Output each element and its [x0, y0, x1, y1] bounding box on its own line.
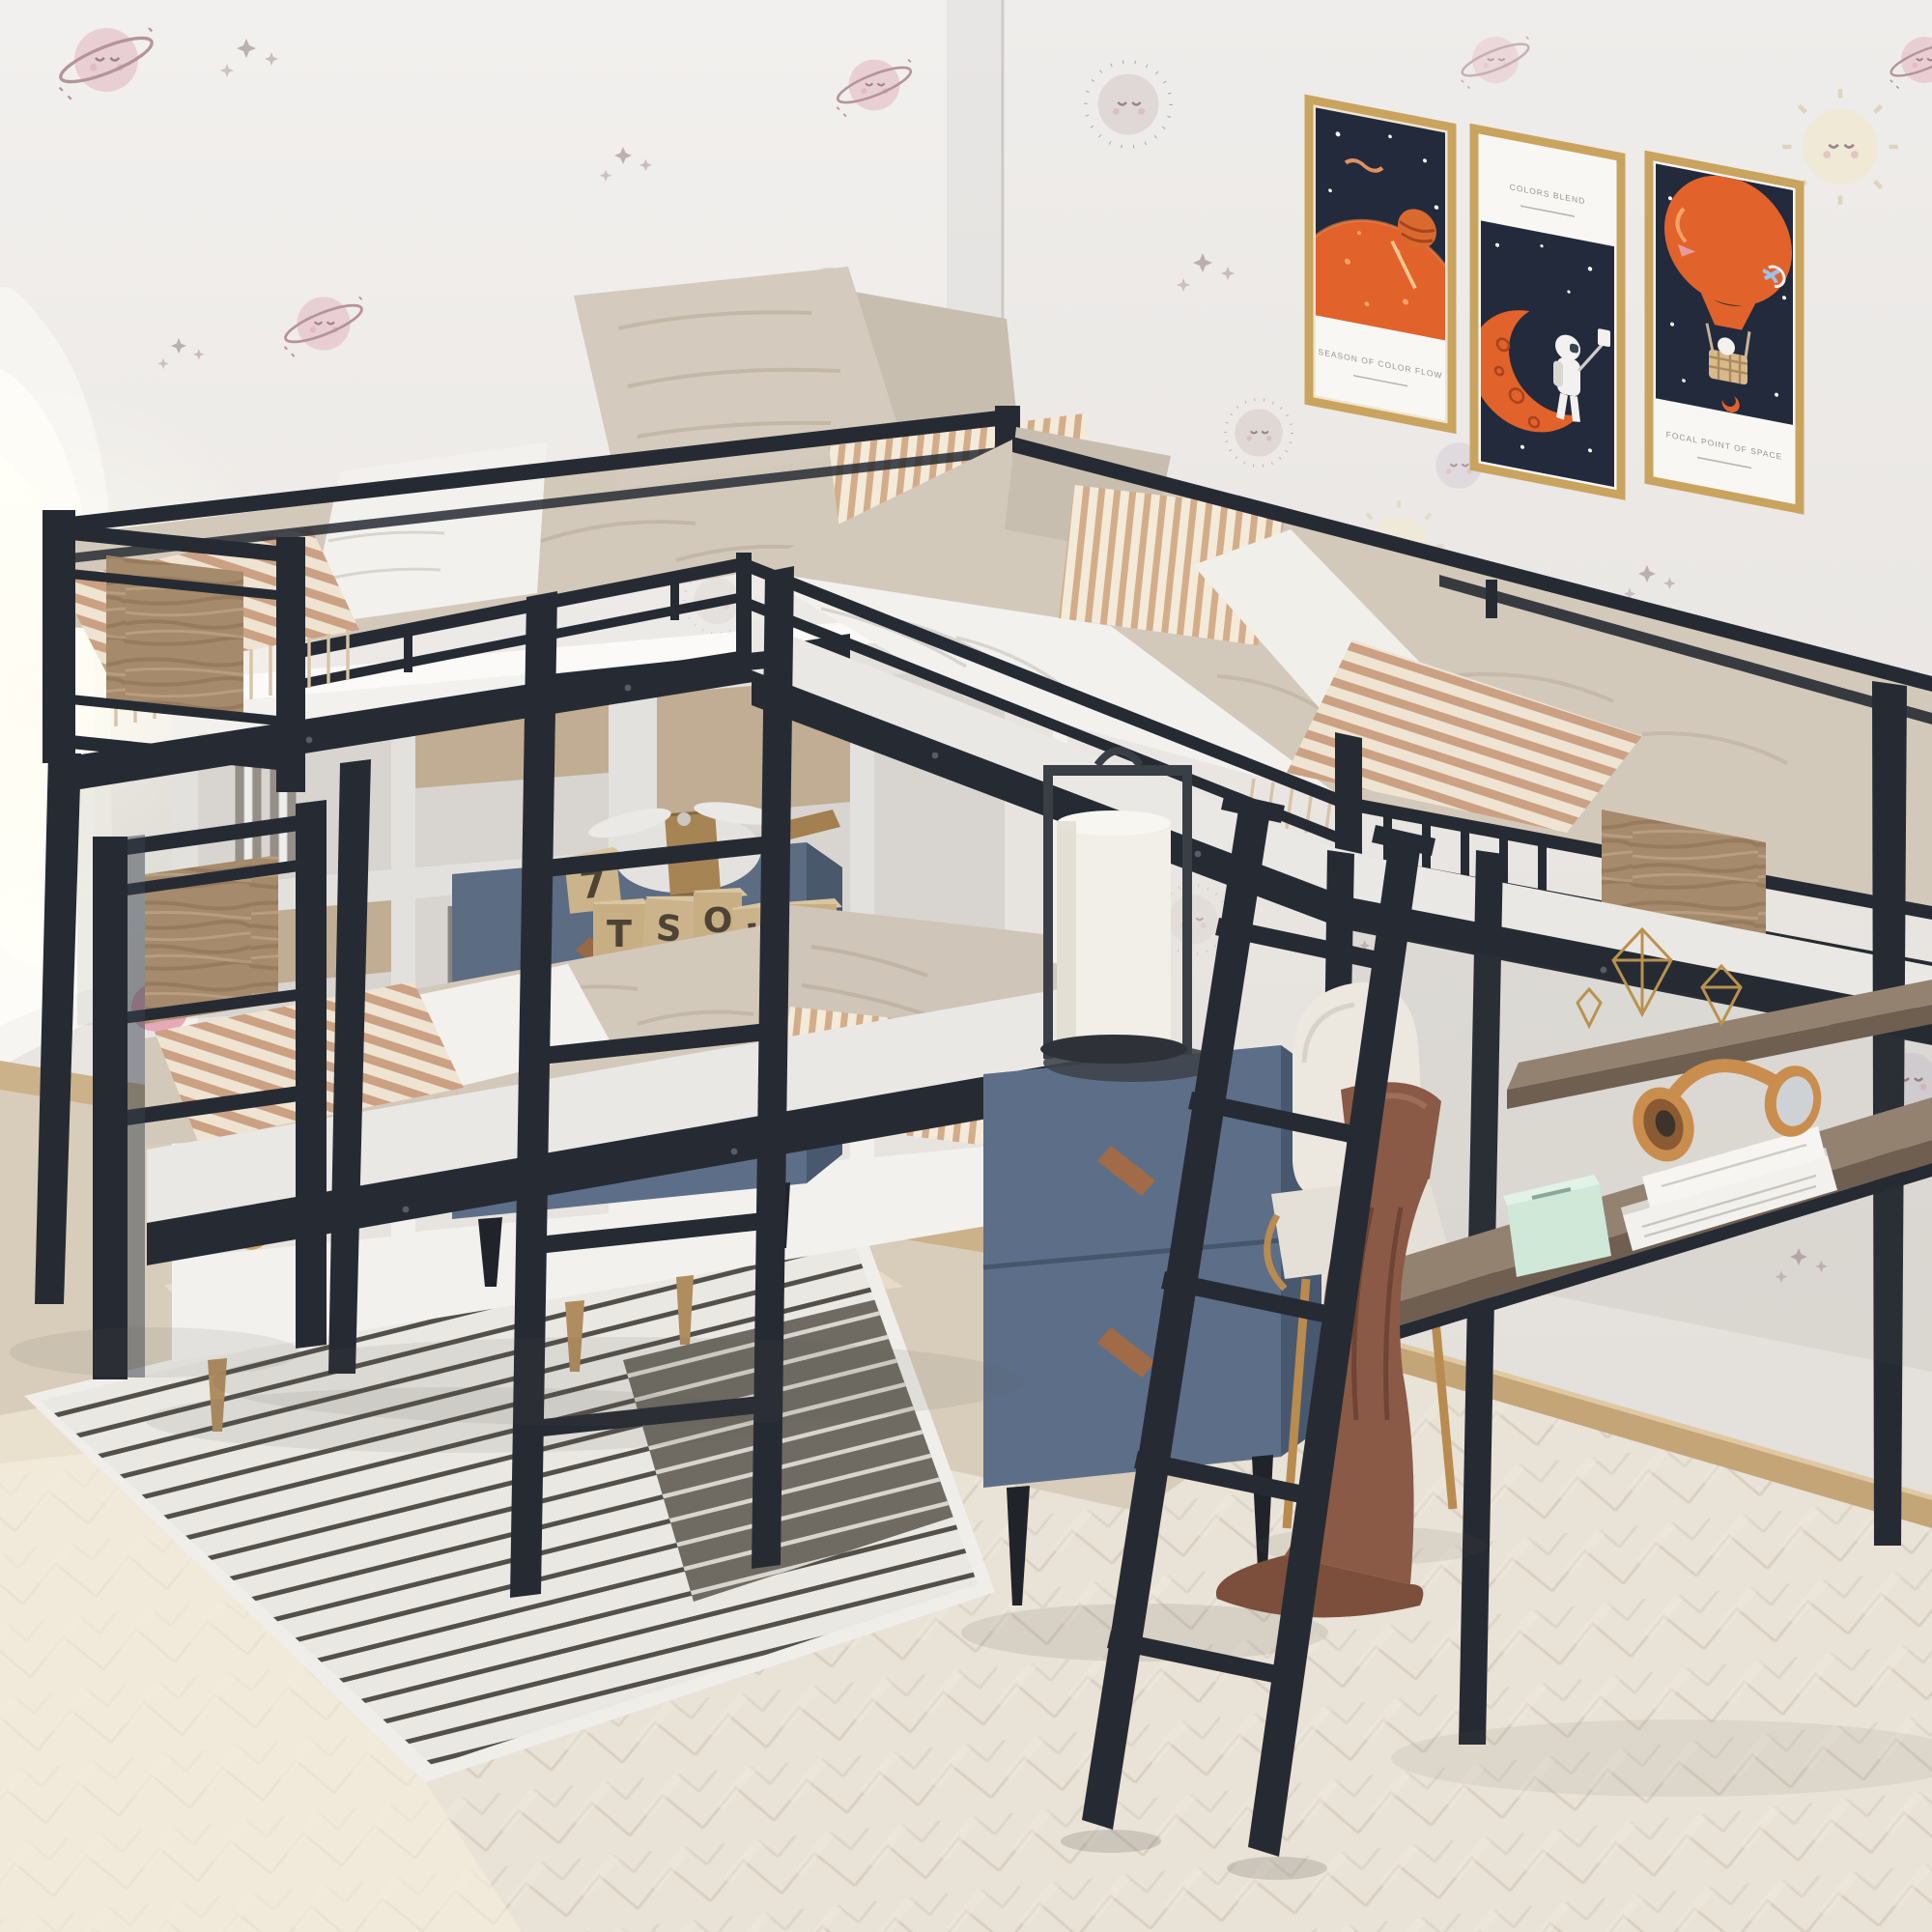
kids-bedroom-photo: SEASON OF COLOR FLOW COLORS BLEND: [0, 0, 1932, 1932]
poster-hot-air-balloon: FOCAL POINT OF SPACE: [1649, 156, 1800, 509]
poster-orange-planet: SEASON OF COLOR FLOW: [1290, 96, 1467, 432]
poster-astronaut-moon: COLORS BLEND: [1470, 128, 1621, 495]
